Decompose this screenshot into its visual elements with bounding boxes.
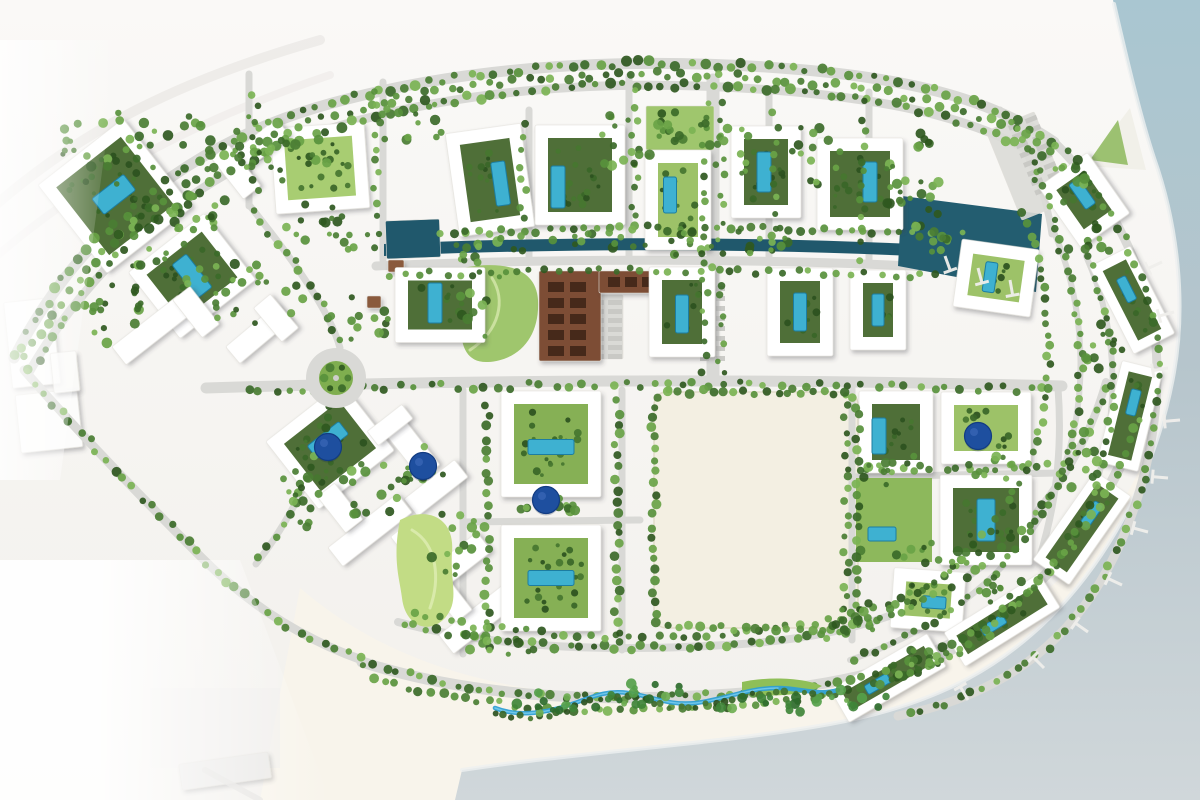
- building-courtyard: [501, 391, 601, 497]
- building: [850, 270, 906, 350]
- map-pin[interactable]: [965, 423, 992, 452]
- map-pin[interactable]: [410, 453, 437, 482]
- building-courtyard: [501, 525, 601, 631]
- road-s-mid: [463, 520, 640, 522]
- roundabout: [306, 348, 366, 408]
- canal-basin: [385, 219, 440, 259]
- vacant-plot: [654, 392, 858, 628]
- building: [953, 239, 1040, 317]
- building: [535, 125, 625, 225]
- kiosk: [367, 296, 381, 308]
- map-pin[interactable]: [533, 487, 560, 516]
- building: [767, 268, 833, 356]
- swimming-pool: [868, 527, 896, 541]
- master-plan-map[interactable]: [0, 0, 1200, 800]
- map-pin[interactable]: [315, 434, 342, 463]
- souk-roof-panels: [608, 277, 654, 287]
- master-plan-viewport: [0, 0, 1200, 800]
